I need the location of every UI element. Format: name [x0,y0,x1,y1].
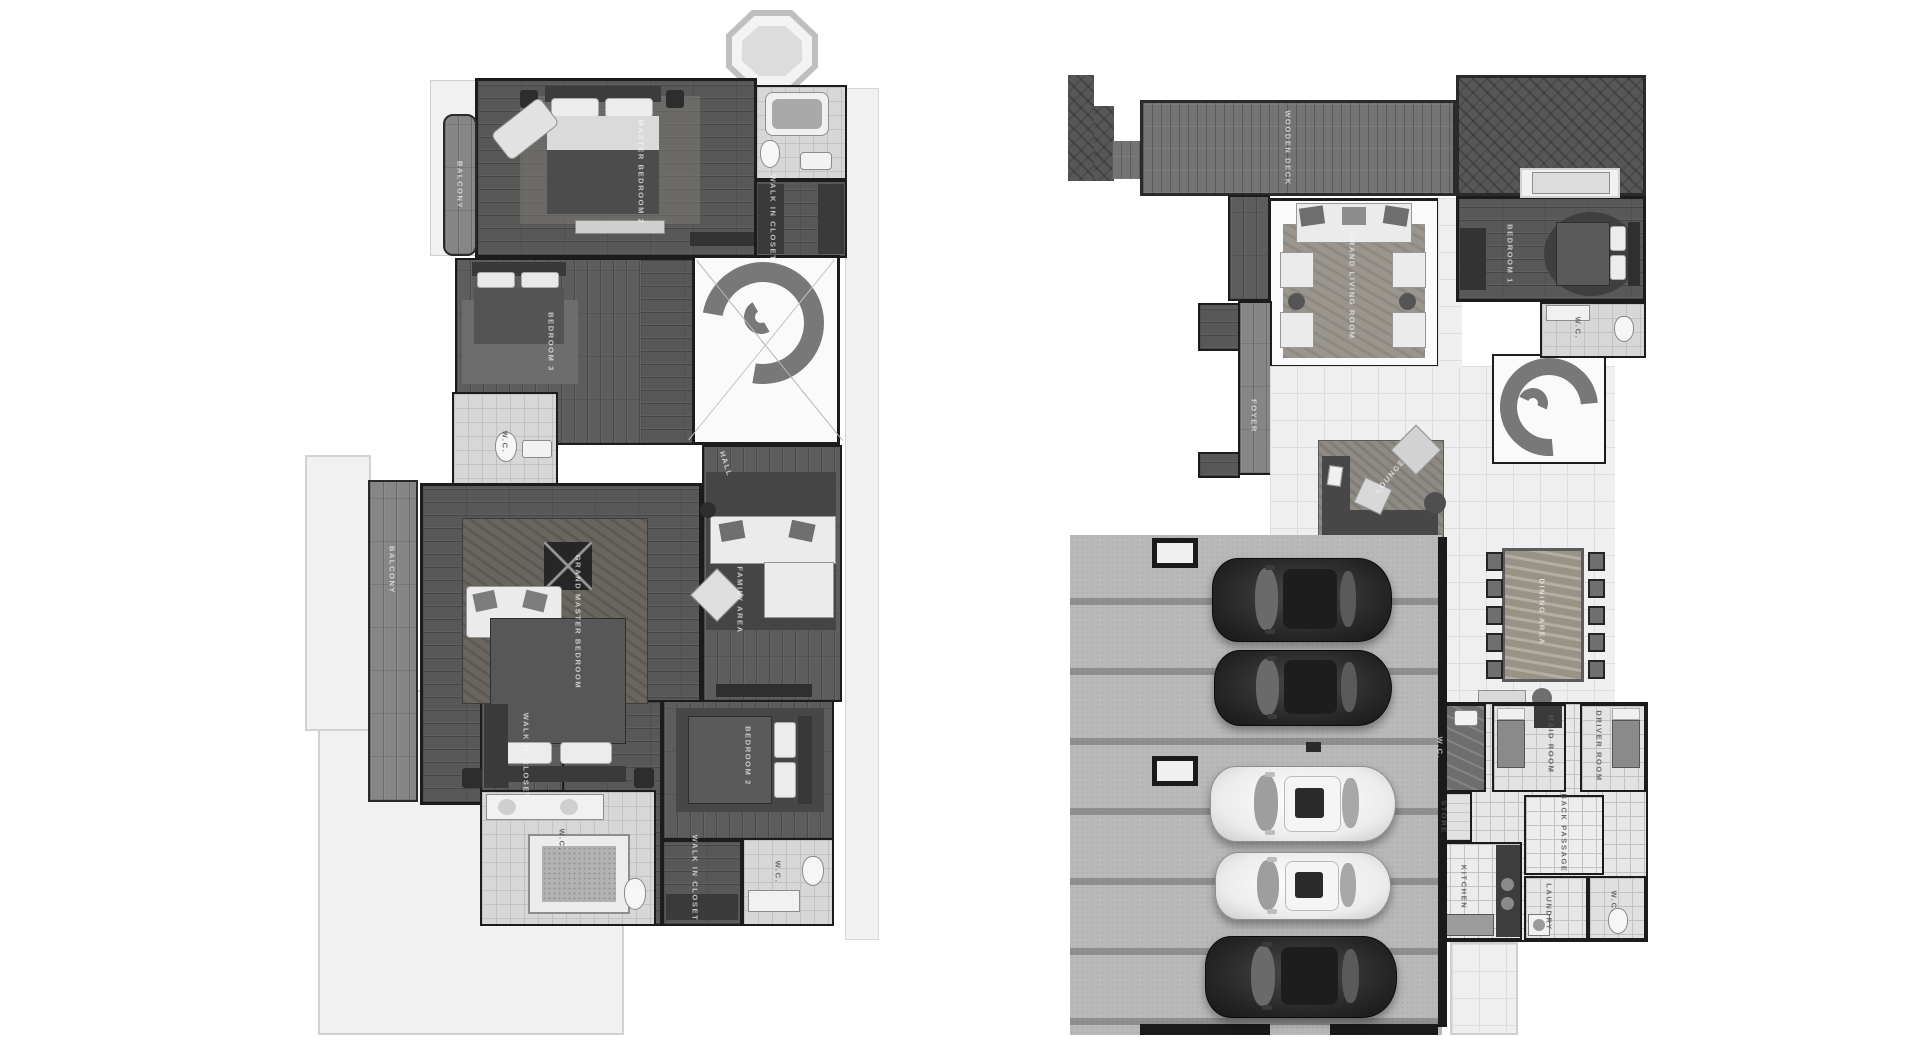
mb2-bathtub-basin [772,99,822,129]
wc3-toilet [802,856,824,886]
b2-pillow-a [774,722,796,758]
foyer-strip [1238,301,1272,475]
liv-armchair-tl [1280,252,1314,288]
wc2-basin-b [560,799,578,815]
dining-chair-right-4 [1588,633,1605,652]
dining-chair-right-2 [1588,579,1605,598]
mb2-toilet [760,140,780,168]
balcony-upper-strip [443,114,477,256]
mb2-pillow-right [605,98,653,118]
gm-bed-blanket [490,618,626,744]
b3-bed-blanket [474,288,564,344]
vehicle-mirror-bottom [1267,909,1277,914]
vehicle-rear-glass [1342,778,1359,828]
vehicle-mirror-bottom [1265,629,1275,634]
vehicle-rear-glass [1340,863,1356,908]
fam-tv-console [716,684,812,697]
vehicle-roof [1283,569,1336,628]
vehicle-sedan-white [1215,852,1389,918]
dining-chair-left-5 [1486,660,1503,679]
vehicle-mirror-top [1265,565,1275,570]
vehicle-rear-glass [1340,571,1356,627]
b2-bed-headboard [798,716,812,804]
vehicle-windshield [1251,946,1276,1007]
deck-stub [1112,141,1140,179]
vehicle-windshield [1255,568,1278,630]
mb2-sink [800,152,832,170]
b1-wardrobe [1460,228,1486,290]
vehicle-sedan-dark [1214,650,1390,724]
mb2-pillow-left [551,98,599,118]
b1-bed-headboard [1628,222,1640,286]
vehicle-roof [1281,947,1338,1005]
vehicle-windshield [1257,860,1280,910]
porch-stub-upper [1198,303,1240,351]
vehicle-mirror-bottom [1267,714,1277,719]
dining-table [1502,548,1584,682]
maid-bed-pillow [1497,708,1525,720]
vehicle-roof [1284,660,1337,713]
maid-wardrobe [1534,706,1562,728]
gm-nightstand-right [634,768,654,788]
b1-pillow-a [1610,226,1626,251]
dining-chair-right-1 [1588,552,1605,571]
dining-chair-right-5 [1588,660,1605,679]
wc2-basin-a [498,799,516,815]
b2-pillow-b [774,762,796,798]
b1-bed-blanket [1556,222,1610,286]
kitchen-burner-a [1501,878,1514,891]
wc1-toilet [495,432,517,462]
house-driveway-wall [1438,537,1447,1027]
wic3-wardrobe [666,894,738,920]
b1-pillow-b [1610,255,1626,280]
boundary-wall-right [1330,1024,1438,1035]
vehicle-sunroof [1295,788,1324,818]
vehicle-rear-glass [1342,949,1359,1003]
fam-floor-lamp [700,502,716,518]
laundry-washer-drum [1533,919,1545,931]
liv-sofa-cushion-a [1299,205,1325,226]
liv-armchair-tr [1392,252,1426,288]
vehicle-mirror-top [1265,772,1275,777]
mb2-bed-sheet [547,116,659,154]
liv-armchair-bl [1280,312,1314,348]
driver-bed-pillow [1612,708,1640,720]
driveway-drain [1306,742,1321,752]
wooden-deck-main [1140,100,1456,196]
wardrobe-strip-left [758,184,784,254]
wc1-vanity [522,440,552,458]
upper-corridor [641,258,694,445]
vehicle-mirror-top [1267,656,1277,661]
balcony-lower-strip [368,480,418,802]
vehicle-windshield [1254,775,1278,831]
mb2-bed-blanket [547,150,659,214]
wc4-toilet [1614,316,1634,342]
vehicle-mirror-bottom [1262,1005,1272,1010]
wc4-vanity [1546,305,1590,321]
maid-bed-blanket [1497,720,1525,768]
b3-pillow-a [477,272,515,288]
dining-chair-left-2 [1486,579,1503,598]
lounge-pouf [1424,492,1446,514]
vehicle-mirror-bottom [1265,830,1275,835]
octagon-bay-basin [742,26,802,76]
entry-walk [1450,942,1518,1035]
vehicle-suv-dark-2 [1205,936,1395,1016]
dining-chair-left-1 [1486,552,1503,571]
wc2-toilet [624,878,646,910]
vehicle-rear-glass [1341,662,1357,712]
liv-side-table-left [1288,293,1305,310]
driver-bed-blanket [1612,720,1640,768]
liv-sofa-cushion-c [1383,205,1410,227]
vehicle-mirror-top [1262,942,1272,947]
gm-center-table [544,542,592,590]
floor-plan-canvas: BALCONYMASTER BEDROOM 2WALK IN CLOSETBED… [0,0,1920,1059]
wc5-sink [1454,710,1478,726]
wardrobe-strip-right [818,184,844,254]
vehicle-windshield [1256,659,1279,715]
liv-armchair-br [1392,312,1426,348]
wc6-toilet [1608,908,1628,934]
lounge-papers [1327,465,1344,487]
dining-chair-right-3 [1588,606,1605,625]
kitchen-counter-right [1496,845,1520,937]
wc3-vanity [748,890,800,912]
terrace-outline-mid-left [305,455,371,731]
mb2-dresser [690,232,754,246]
liv-sofa-cushion-b [1342,207,1366,225]
gm-pillow-b [560,742,612,764]
entry-cabinet-strip [1228,195,1270,301]
mb2-bench [575,220,665,234]
gm-bed-headboard [490,766,626,782]
mb2-nightstand-right [666,90,684,108]
wc2-tub-basin [542,846,616,902]
vehicle-suv-dark-1 [1212,558,1390,640]
b1-desk [1532,172,1610,194]
wic2-wardrobe [484,704,508,788]
dining-chair-left-4 [1486,633,1503,652]
b2-bed-blanket [688,716,772,804]
passage-room [1524,795,1604,875]
driveway-planter-2 [1152,756,1198,786]
gm-nightstand-left [462,768,482,788]
vehicle-sunroof [1295,872,1323,898]
dining-chair-left-3 [1486,606,1503,625]
liv-side-table-right [1399,293,1416,310]
fam-sofa-chaise [764,562,834,618]
porch-stub-lower [1198,452,1240,478]
vehicle-mirror-top [1267,857,1277,862]
vehicle-suv-white [1210,766,1394,840]
terrace-outline-right [845,88,879,940]
deck-block-b [1094,106,1114,181]
deck-block-a [1068,75,1094,181]
boundary-wall-left [1140,1024,1270,1035]
kitchen-burner-b [1501,897,1514,910]
b3-pillow-b [521,272,559,288]
driveway-planter-1 [1152,538,1198,568]
